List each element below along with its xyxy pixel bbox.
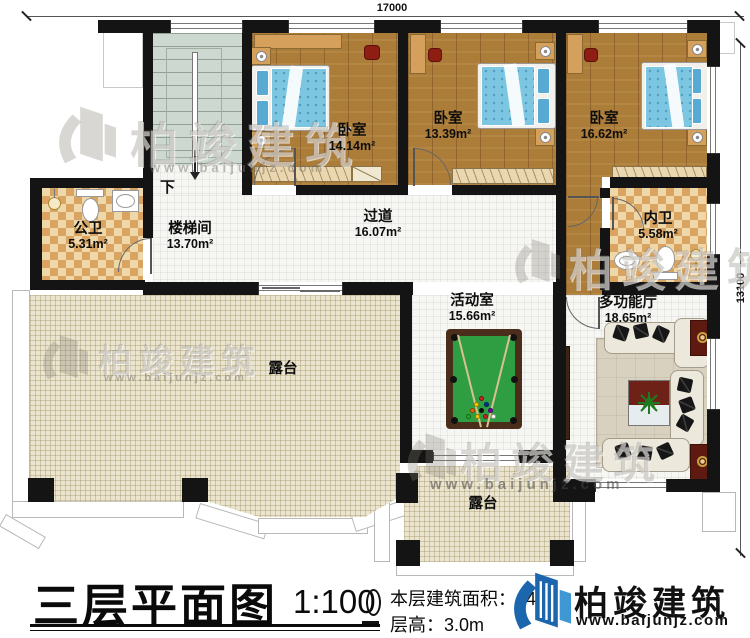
wall [296, 185, 408, 195]
title-underline-thin [30, 630, 380, 631]
toilet-tank [76, 189, 104, 197]
room-name: 露台 [455, 497, 511, 513]
title-scale: 1:100 [293, 583, 376, 621]
terrace-railing [12, 501, 184, 518]
terrace-railing [702, 492, 736, 532]
title-underline [30, 624, 380, 627]
stair-down-label: 下 [160, 176, 186, 197]
watermark-url: www.baijunjz.com [150, 160, 326, 175]
room-label-ensuite-bath: 内卫 5.58m² [622, 212, 694, 241]
billiard-ball [484, 402, 489, 407]
floor-height-label: 层高： [390, 615, 444, 635]
room-label-bedroom1: 卧室 14.14m² [312, 124, 392, 153]
lamp-icon [540, 46, 551, 57]
door-leaf [568, 196, 599, 198]
room-name: 卧室 [312, 124, 392, 140]
room-label-public-bath: 公卫 5.31m² [50, 222, 126, 251]
chair [428, 48, 442, 62]
room-label-corridor: 过道 16.07m² [338, 210, 418, 239]
wall [30, 178, 145, 188]
pillow [537, 98, 550, 124]
window [170, 20, 243, 33]
room-label-game-room: 活动室 15.66m² [428, 294, 516, 323]
wall [143, 282, 258, 295]
room-name: 内卫 [622, 212, 694, 228]
room-label-bedroom3: 卧室 16.62m² [562, 112, 646, 141]
billiard-ball [479, 408, 484, 413]
floor-height-line: 层高：3.0m [390, 611, 484, 637]
nightstand [687, 40, 707, 58]
chair [364, 45, 380, 60]
room-name: 活动室 [428, 294, 516, 310]
floor-height-value: 3.0m [444, 615, 484, 635]
room-area: 13.39m² [406, 128, 490, 142]
sliding-door-panel [262, 287, 300, 289]
lamp-icon [256, 51, 267, 62]
terrace-railing [572, 492, 586, 562]
room-area: 14.14m² [312, 140, 392, 154]
pillow [256, 70, 269, 96]
table-pocket [510, 417, 517, 424]
watermark-url: www.baijunjz.com [430, 476, 623, 493]
wall [452, 185, 566, 195]
lamp-icon [692, 132, 703, 143]
window [598, 20, 688, 33]
watermark-logo-icon [508, 234, 560, 290]
column [182, 478, 208, 502]
nightstand [687, 128, 707, 146]
room-label-stairwell: 楼梯间 13.70m² [150, 222, 230, 251]
room-label-terrace-south: 露台 [455, 497, 511, 513]
terrace-railing [0, 514, 46, 549]
shower-icon [48, 197, 61, 210]
lamp-icon [692, 44, 703, 55]
pillow [537, 68, 550, 94]
billiard-ball [470, 408, 475, 413]
cushion [677, 377, 694, 394]
company-url: www.baijunjz.com [576, 612, 729, 629]
wall [610, 177, 707, 188]
billiard-ball [466, 414, 471, 419]
watermark-text: 柏竣建筑 [568, 234, 750, 298]
table-pocket [511, 376, 518, 383]
billiard-ball [483, 414, 488, 419]
top-dimension-label: 17000 [360, 2, 424, 14]
axis-marker [366, 589, 381, 616]
billiard-ball [479, 396, 484, 401]
toilet-icon [82, 198, 99, 222]
room-name: 楼梯间 [150, 222, 230, 238]
watermark-url: www.baijunjz.com [104, 372, 247, 384]
wall [398, 20, 408, 195]
company-logo-icon [505, 568, 571, 636]
chair [584, 48, 598, 62]
room-area: 5.31m² [50, 238, 126, 252]
floor-area-label: 本层建筑面积： [390, 589, 516, 609]
door-leaf [413, 148, 415, 186]
billiard-ball [491, 414, 496, 419]
window [440, 20, 523, 33]
room-area: 13.70m² [150, 238, 230, 252]
table-pocket [451, 417, 458, 424]
room-name: 卧室 [406, 112, 490, 128]
top-dimension-line [26, 16, 744, 17]
floor-plan-canvas: 17000 13100 下 [0, 0, 750, 638]
wall [600, 188, 610, 198]
window [707, 66, 720, 154]
room-area: 5.58m² [622, 228, 694, 242]
table-pocket [510, 334, 517, 341]
watermark-logo-icon [36, 330, 88, 386]
plant-icon [637, 391, 661, 415]
room-name: 公卫 [50, 222, 126, 238]
wardrobe [452, 168, 554, 184]
room-area: 16.07m² [338, 226, 418, 240]
nightstand [535, 42, 555, 60]
room-area: 16.62m² [562, 128, 646, 142]
sink-icon [112, 190, 139, 212]
room-name: 露台 [255, 362, 311, 378]
nightstand [535, 128, 555, 146]
room-label-multi-hall: 多功能厅 18.65m² [580, 296, 676, 325]
billiard-ball [474, 402, 479, 407]
room-area: 18.65m² [580, 312, 676, 326]
window [288, 20, 375, 33]
nightstand [251, 47, 271, 65]
wall [30, 280, 145, 290]
room-name: 过道 [338, 210, 418, 226]
billiard-ball [475, 414, 480, 419]
axis-marker-dash [362, 621, 379, 624]
window [707, 338, 720, 410]
room-label-bedroom2: 卧室 13.39m² [406, 112, 490, 141]
column [396, 540, 420, 566]
column [28, 478, 54, 502]
cushion [633, 323, 650, 340]
desk [410, 34, 426, 74]
lamp-icon [540, 132, 551, 143]
desk [567, 34, 583, 74]
billiard-ball [488, 408, 493, 413]
table-pocket [450, 376, 457, 383]
room-name: 多功能厅 [580, 296, 676, 312]
room-name: 卧室 [562, 112, 646, 128]
watermark-logo-icon [50, 100, 116, 172]
room-area: 15.66m² [428, 310, 516, 324]
shower-hose [54, 189, 55, 198]
column [550, 540, 574, 566]
wall [343, 282, 413, 295]
wall [30, 178, 42, 290]
sink-basin [116, 194, 135, 208]
room-label-terrace-main: 露台 [255, 362, 311, 378]
exterior-flue [103, 24, 143, 88]
sliding-door-panel [300, 290, 340, 292]
